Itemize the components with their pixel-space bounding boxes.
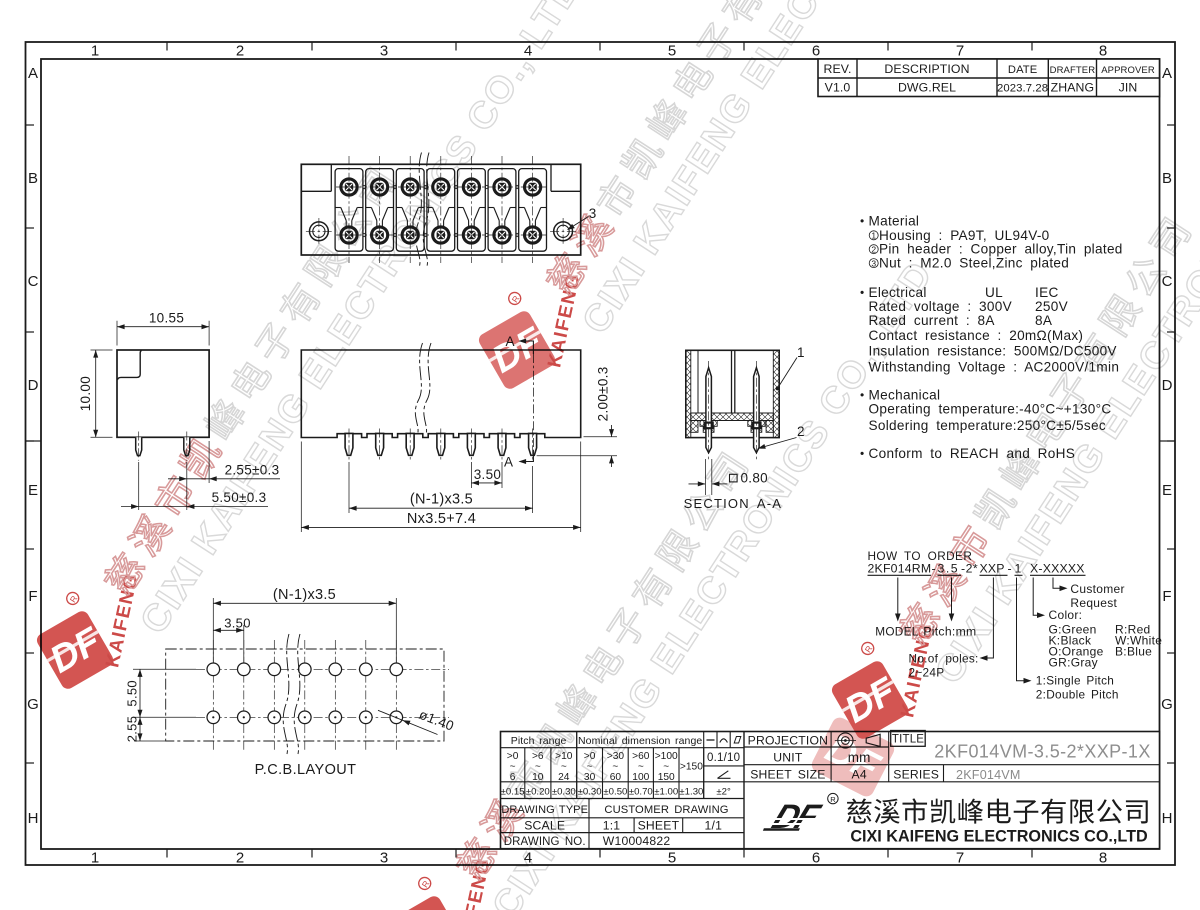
svg-text:(N-1)x3.5: (N-1)x3.5: [410, 492, 473, 508]
svg-text:1: 1: [797, 345, 805, 360]
svg-text:E: E: [28, 482, 38, 499]
svg-text:DWG.REL: DWG.REL: [898, 81, 956, 95]
svg-text:10.00: 10.00: [78, 376, 93, 411]
svg-text:Pin header : Copper alloy,Tin: Pin header : Copper alloy,Tin plated: [879, 242, 1123, 257]
svg-text:(N-1)x3.5: (N-1)x3.5: [273, 587, 336, 603]
svg-text:2KF014VM-3.5-2*XXP-1X: 2KF014VM-3.5-2*XXP-1X: [934, 741, 1151, 761]
svg-text:A: A: [28, 65, 38, 82]
svg-text:2: 2: [236, 850, 244, 867]
svg-text:V1.0: V1.0: [825, 81, 851, 95]
svg-text:Operating temperature:-40°C~+1: Operating temperature:-40°C~+130°C: [869, 402, 1112, 417]
svg-text:E: E: [1162, 482, 1172, 499]
svg-text:150: 150: [658, 772, 675, 783]
svg-text:C: C: [28, 273, 39, 290]
svg-text:>150: >150: [680, 762, 703, 773]
svg-text:UNIT: UNIT: [773, 751, 803, 765]
svg-text:3: 3: [380, 43, 388, 60]
svg-text:A: A: [504, 454, 513, 469]
svg-text:IEC: IEC: [1035, 285, 1059, 300]
svg-text:Material: Material: [869, 214, 920, 229]
svg-text:8: 8: [1099, 43, 1107, 60]
svg-text:B:Blue: B:Blue: [1115, 644, 1152, 658]
svg-text:SERIES: SERIES: [893, 768, 939, 782]
svg-text:3: 3: [871, 258, 876, 268]
svg-text:GR:Gray: GR:Gray: [1049, 655, 1098, 669]
svg-text:10.55: 10.55: [149, 310, 184, 325]
svg-text:1: 1: [871, 231, 876, 241]
svg-text:JIN: JIN: [1119, 81, 1138, 95]
svg-text:7: 7: [956, 43, 964, 60]
svg-text:5: 5: [668, 850, 676, 867]
svg-text:~: ~: [561, 762, 567, 773]
svg-text:P.C.B.LAYOUT: P.C.B.LAYOUT: [255, 762, 357, 778]
svg-text:Conform to REACH and RoHS: Conform to REACH and RoHS: [869, 446, 1076, 461]
svg-text:100: 100: [632, 772, 649, 783]
svg-text:1/1: 1/1: [705, 819, 723, 833]
svg-text:•: •: [860, 214, 864, 228]
svg-text:B: B: [1162, 170, 1172, 187]
svg-text:PROJECTION: PROJECTION: [748, 734, 829, 748]
svg-text:~: ~: [663, 762, 669, 773]
svg-text:G: G: [1161, 696, 1173, 713]
svg-text:DATE: DATE: [1008, 64, 1037, 76]
svg-text:C: C: [1162, 273, 1173, 290]
svg-text:1:Single Pitch: 1:Single Pitch: [1036, 674, 1114, 688]
svg-text:CUSTOMER DRAWING: CUSTOMER DRAWING: [604, 804, 728, 816]
svg-text:±1.00: ±1.00: [654, 786, 678, 797]
svg-text:±0.70: ±0.70: [629, 786, 653, 797]
svg-text:Customer: Customer: [1070, 582, 1124, 596]
svg-text:G: G: [27, 696, 39, 713]
svg-text:2023.7.28: 2023.7.28: [997, 83, 1048, 95]
svg-text:~: ~: [638, 762, 644, 773]
svg-text:D: D: [28, 377, 39, 394]
svg-text:>60: >60: [632, 751, 650, 762]
svg-text:2: 2: [236, 43, 244, 60]
svg-text:1:1: 1:1: [603, 819, 621, 833]
svg-text:1: 1: [91, 850, 99, 867]
svg-text:2.55: 2.55: [125, 716, 140, 743]
svg-text:8: 8: [1099, 850, 1107, 867]
svg-text:250V: 250V: [1035, 299, 1068, 314]
svg-text:3: 3: [380, 850, 388, 867]
svg-text:0.1/10: 0.1/10: [707, 752, 740, 764]
svg-text:±1.30: ±1.30: [679, 786, 703, 797]
svg-text:8A: 8A: [1035, 313, 1053, 328]
svg-text:Request: Request: [1070, 596, 1117, 610]
svg-text:2: 2: [871, 245, 876, 255]
svg-text:ZHANG: ZHANG: [1051, 81, 1095, 95]
svg-text:5.50: 5.50: [125, 680, 140, 707]
svg-text:•: •: [860, 447, 864, 461]
svg-text:Withstanding Voltage : AC2000V: Withstanding Voltage : AC2000V/1min: [869, 360, 1120, 375]
svg-text:H: H: [28, 810, 39, 827]
svg-text:UL: UL: [985, 285, 1003, 300]
svg-text:3.50: 3.50: [474, 467, 501, 482]
svg-text:F: F: [28, 588, 37, 605]
svg-text:2:Double Pitch: 2:Double Pitch: [1036, 688, 1119, 702]
svg-text:Color:: Color:: [1049, 608, 1083, 622]
svg-text:±2°: ±2°: [716, 786, 731, 797]
svg-text:R: R: [830, 795, 836, 804]
svg-text:2.00±0.3: 2.00±0.3: [595, 366, 610, 421]
svg-text:2KF014VM: 2KF014VM: [956, 768, 1021, 782]
svg-text:A: A: [1162, 65, 1172, 82]
svg-text:1: 1: [91, 43, 99, 60]
svg-text:6: 6: [812, 850, 820, 867]
svg-text:Soldering temperature:250°C±5/: Soldering temperature:250°C±5/5sec: [869, 418, 1106, 433]
svg-text:Mechanical: Mechanical: [869, 388, 941, 403]
svg-text:-2*: -2*: [961, 562, 978, 576]
svg-text:W10004822: W10004822: [603, 834, 671, 848]
svg-text:B: B: [28, 170, 38, 187]
svg-text:>100: >100: [655, 751, 678, 762]
svg-text:5: 5: [668, 43, 676, 60]
svg-text:~: ~: [510, 762, 516, 773]
svg-text:TITLE: TITLE: [892, 733, 924, 745]
svg-text:CIXI KAIFENG ELECTRONICS CO.,L: CIXI KAIFENG ELECTRONICS CO.,LTD: [850, 827, 1148, 845]
svg-text:•: •: [860, 286, 864, 300]
svg-text:APPROVER: APPROVER: [1101, 65, 1155, 76]
svg-text:DRAFTER: DRAFTER: [1050, 65, 1096, 76]
svg-text:H: H: [1162, 810, 1173, 827]
svg-text:3.50: 3.50: [224, 615, 251, 630]
svg-text:Housing : PA9T, UL94V-0: Housing : PA9T, UL94V-0: [879, 228, 1050, 243]
svg-text:2KF014RM: 2KF014RM: [868, 562, 932, 576]
svg-text:DESCRIPTION: DESCRIPTION: [884, 62, 969, 76]
svg-text:>0: >0: [507, 751, 519, 762]
svg-text:6: 6: [812, 43, 820, 60]
svg-text:REV.: REV.: [824, 62, 852, 76]
svg-text:Nx3.5+7.4: Nx3.5+7.4: [407, 511, 476, 527]
svg-text:7: 7: [956, 850, 964, 867]
svg-text:SHEET: SHEET: [638, 819, 680, 833]
svg-text:F: F: [1162, 588, 1171, 605]
